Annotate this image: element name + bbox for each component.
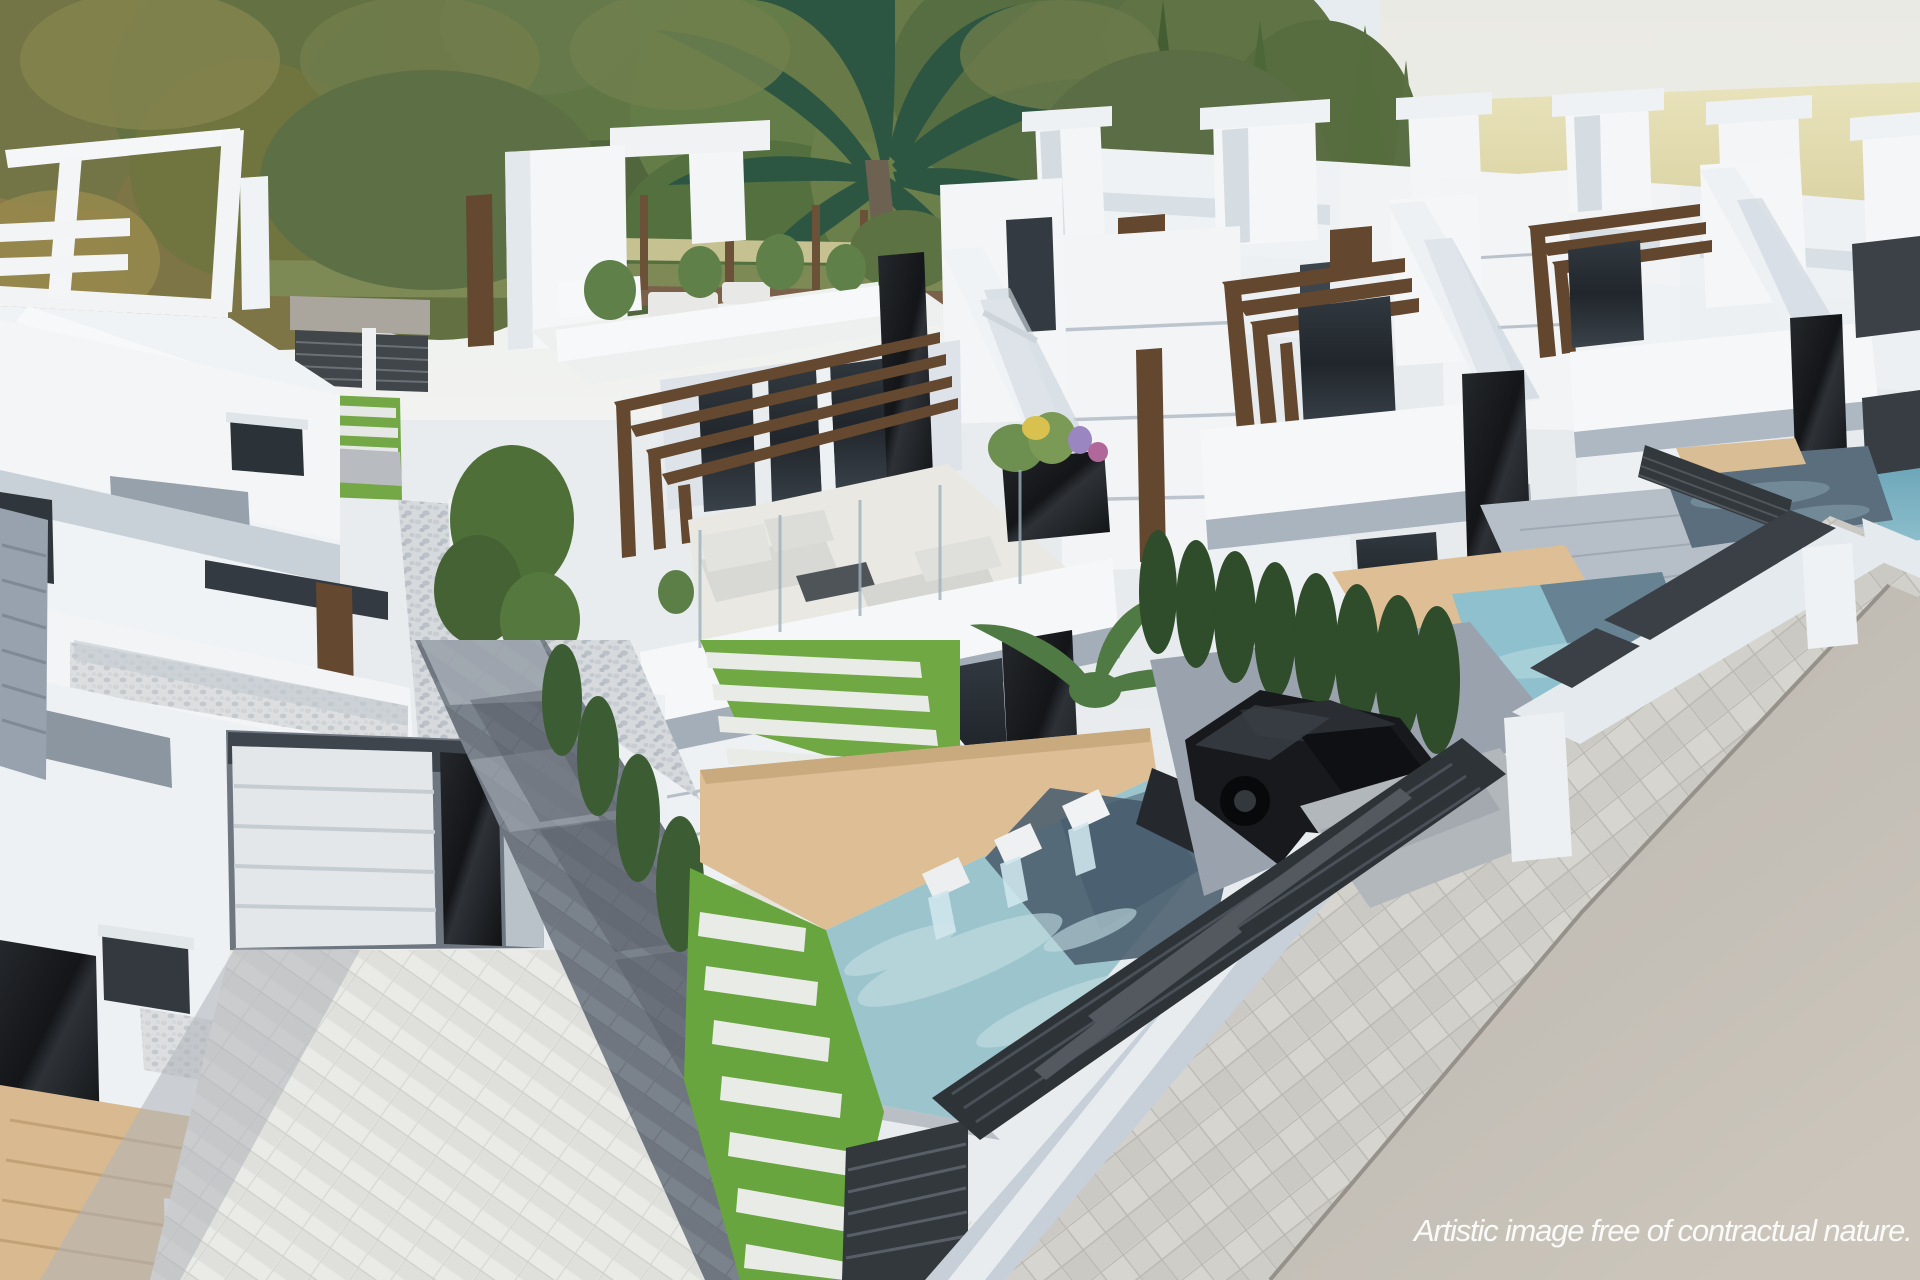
svg-text:Artistic image free of contrac: Artistic image free of contractual natur… [1412,1213,1912,1248]
